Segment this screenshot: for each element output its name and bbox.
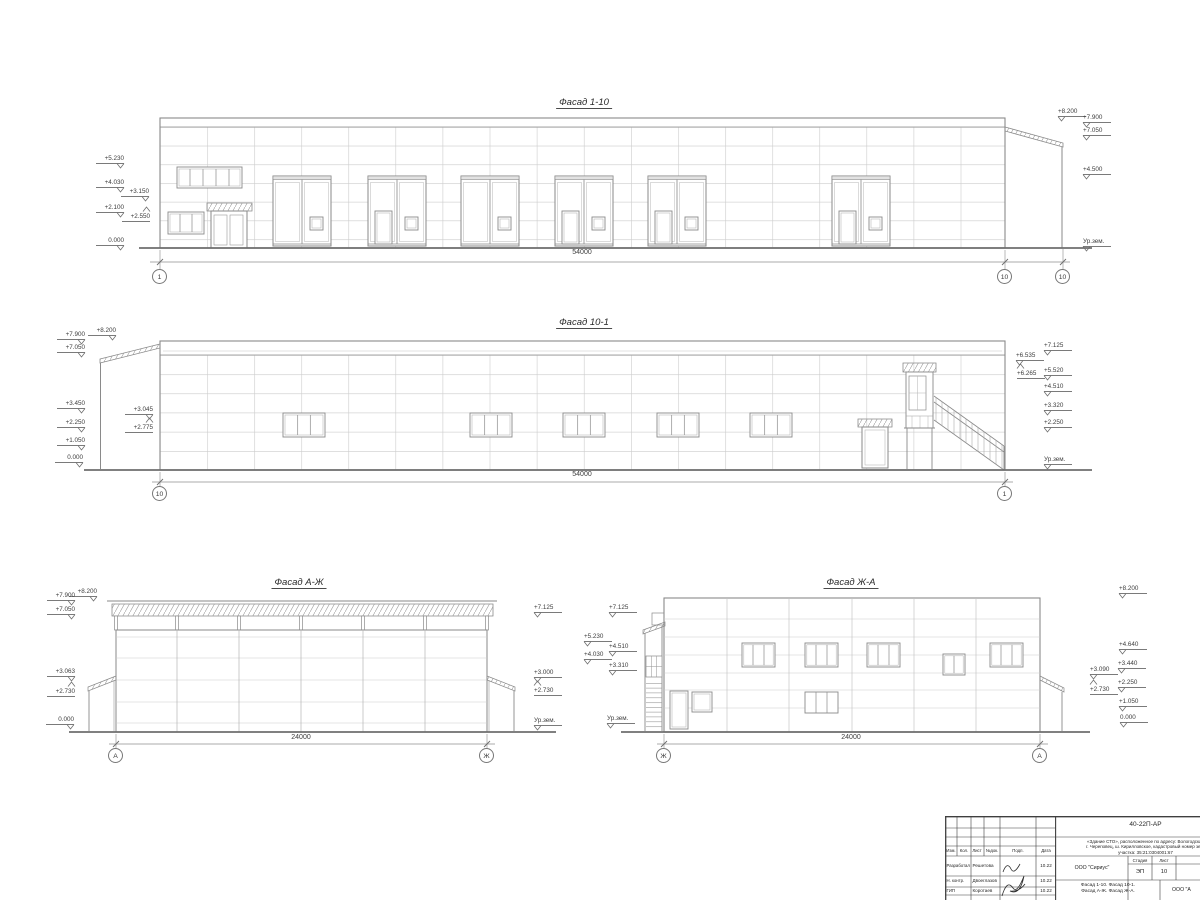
sheet-content: Фасад 1-10. Фасад 10-1. Фасад А-Ж. Фасад… xyxy=(1056,883,1160,895)
stage-value: ЭП xyxy=(1128,869,1152,875)
elevation-mark: Ур.зем. xyxy=(1044,455,1072,465)
elevation-mark: +7.050 xyxy=(57,343,85,353)
elevation-tick-icon xyxy=(1082,246,1091,252)
elevation-value: +7.900 xyxy=(1083,114,1102,121)
elevation-tick-icon xyxy=(66,724,75,730)
elevation-tick-icon xyxy=(1089,679,1098,685)
elevation-value: +3.320 xyxy=(1044,402,1063,409)
elevation-mark: +2.250 xyxy=(1118,678,1146,688)
elevation-mark: +7.050 xyxy=(1083,126,1111,136)
elevation-tick-icon xyxy=(533,680,542,686)
elevation-tick-icon xyxy=(583,641,592,647)
elevation-tick-icon xyxy=(145,417,154,423)
signature-1 xyxy=(1003,864,1020,872)
elevation-tick-icon xyxy=(1043,350,1052,356)
elevation-value: +4.030 xyxy=(105,179,124,186)
elevation-mark: Ур.зем. xyxy=(534,716,562,726)
elevation-value: +4.500 xyxy=(1083,166,1102,173)
elevation-mark: +3.310 xyxy=(609,661,637,671)
elevation-value: +5.520 xyxy=(1044,367,1063,374)
elevation-value: +6.535 xyxy=(1016,352,1035,359)
dimension-label: 54000 xyxy=(572,471,591,479)
person-name: Двоеглазов xyxy=(973,878,1000,884)
elevation-value: +3.063 xyxy=(56,668,75,675)
elevation-value: +3.310 xyxy=(609,662,628,669)
elevation-mark: +3.000 xyxy=(534,668,562,678)
elevation-mark: +3.450 xyxy=(57,399,85,409)
elevation-mark: +3.320 xyxy=(1044,401,1072,411)
elevation-value: +6.265 xyxy=(1017,370,1036,377)
person-date: 10.22 xyxy=(1037,878,1055,884)
elevation-value: +7.050 xyxy=(56,606,75,613)
project-description: «Здание СТО», расположенное по адресу: В… xyxy=(1056,839,1200,856)
elevation-value: +2.250 xyxy=(1118,679,1137,686)
elevation-value: +2.730 xyxy=(56,688,75,695)
elevation-mark: +7.125 xyxy=(1044,341,1072,351)
elevation-mark: +7.900 xyxy=(1083,113,1111,123)
elevation-value: Ур.зем. xyxy=(1083,238,1104,245)
elevation-tick-icon xyxy=(142,206,151,212)
elevation-value: Ур.зем. xyxy=(607,715,628,722)
col-header-izm: Изм. xyxy=(945,848,957,854)
elevation-value: +2.730 xyxy=(534,687,553,694)
elevation-tick-icon xyxy=(77,427,86,433)
elevation-tick-icon xyxy=(1119,722,1128,728)
elevation-tick-icon xyxy=(1117,668,1126,674)
elevation-value: +4.510 xyxy=(609,643,628,650)
person-role: Н. контр. xyxy=(947,878,972,884)
elevation-mark: +6.535 xyxy=(1016,351,1044,361)
elevation-tick-icon xyxy=(1043,391,1052,397)
elevation-tick-icon xyxy=(1043,427,1052,433)
elevation-mark: +2.250 xyxy=(57,418,85,428)
elevation-tick-icon xyxy=(1117,687,1126,693)
axis-bubble: А xyxy=(108,748,123,763)
elevation-mark: +4.500 xyxy=(1083,165,1111,175)
elevation-value: +1.050 xyxy=(66,437,85,444)
elevation-value: +7.050 xyxy=(1083,127,1102,134)
person-name: Коротаев xyxy=(973,888,1000,894)
elevation-value: +7.900 xyxy=(66,331,85,338)
elevation-mark: +1.050 xyxy=(57,436,85,446)
elevation-mark: +2.730 xyxy=(1090,685,1118,695)
dimension-label: 54000 xyxy=(572,249,591,257)
elevation-mark: Ур.зем. xyxy=(607,714,635,724)
facade-title: Фасад А-Ж xyxy=(272,577,327,589)
elevation-mark: +2.250 xyxy=(1044,418,1072,428)
elevation-value: 0.000 xyxy=(67,454,83,461)
drawing-sheet: Фасад 1-105400011010+5.230+4.030+3.150+2… xyxy=(0,0,1200,900)
elevation-value: +5.230 xyxy=(105,155,124,162)
elevation-tick-icon xyxy=(1118,706,1127,712)
stage-label: Стадия xyxy=(1128,858,1152,864)
org2-name: ООО "А xyxy=(1172,887,1191,893)
elevation-value: +3.450 xyxy=(66,400,85,407)
elevation-mark: +4.030 xyxy=(584,650,612,660)
elevation-mark: +4.030 xyxy=(96,178,124,188)
elevation-value: +3.150 xyxy=(130,188,149,195)
elevation-tick-icon xyxy=(1082,135,1091,141)
axis-bubble: 1 xyxy=(997,486,1012,501)
elevation-mark: 0.000 xyxy=(1120,713,1148,723)
elevation-value: +3.000 xyxy=(534,669,553,676)
col-header-podp: Подп. xyxy=(1000,848,1036,854)
elevation-mark: +2.730 xyxy=(534,686,562,696)
axis-bubble: 10 xyxy=(997,269,1012,284)
elevation-mark: +3.440 xyxy=(1118,659,1146,669)
elevation-mark: +8.200 xyxy=(1119,584,1147,594)
elevation-value: +3.090 xyxy=(1090,666,1109,673)
col-header-data: Дата xyxy=(1036,848,1056,854)
elevation-value: +1.050 xyxy=(1119,698,1138,705)
elevation-tick-icon xyxy=(67,614,76,620)
person-role: ГИП xyxy=(947,888,972,894)
elevation-mark: +8.200 xyxy=(1058,107,1086,117)
elevation-tick-icon xyxy=(1043,410,1052,416)
elevation-tick-icon xyxy=(141,196,150,202)
elevation-tick-icon xyxy=(1043,375,1052,381)
sheet-content-line: Фасад А-Ж. Фасад Ж-А. xyxy=(1056,889,1160,895)
elevation-tick-icon xyxy=(77,352,86,358)
axis-bubble: Ж xyxy=(656,748,671,763)
elevation-tick-icon xyxy=(116,245,125,251)
sheet-value: 10 xyxy=(1152,869,1176,875)
elevation-tick-icon xyxy=(116,163,125,169)
elevation-tick-icon xyxy=(77,408,86,414)
elevation-mark: +4.510 xyxy=(609,642,637,652)
elevation-mark: +7.900 xyxy=(57,330,85,340)
axis-bubble: 10 xyxy=(1055,269,1070,284)
elevation-value: +3.045 xyxy=(134,406,153,413)
elevation-value: +2.730 xyxy=(1090,686,1109,693)
elevation-value: +2.100 xyxy=(105,204,124,211)
elevation-mark: +4.640 xyxy=(1119,640,1147,650)
elevation-value: +8.200 xyxy=(1119,585,1138,592)
elevation-value: 0.000 xyxy=(108,237,124,244)
title-block: 40-22П-АР «Здание СТО», расположенное по… xyxy=(945,816,1200,900)
elevation-tick-icon xyxy=(1016,363,1025,369)
elevation-tick-icon xyxy=(1118,593,1127,599)
elevation-tick-icon xyxy=(608,670,617,676)
elevation-mark: +1.050 xyxy=(1119,697,1147,707)
elevation-value: +2.250 xyxy=(1044,419,1063,426)
elevation-value: +7.900 xyxy=(56,592,75,599)
elevation-mark: +7.900 xyxy=(47,591,75,601)
col-header-list: Лист xyxy=(970,848,984,854)
elevation-mark: +4.510 xyxy=(1044,382,1072,392)
elevation-tick-icon xyxy=(67,681,76,687)
elevation-mark: Ур.зем. xyxy=(1083,237,1111,247)
dimension-label: 24000 xyxy=(841,734,860,742)
elevation-mark: +5.520 xyxy=(1044,366,1072,376)
axis-bubble: Ж xyxy=(479,748,494,763)
facade-title: Фасад 1-10 xyxy=(556,97,612,109)
elevation-value: +8.200 xyxy=(78,588,97,595)
elevation-value: +3.440 xyxy=(1118,660,1137,667)
axis-bubble: 1 xyxy=(152,269,167,284)
signature-2 xyxy=(1002,876,1025,896)
axis-bubble: А xyxy=(1032,748,1047,763)
elevation-value: +2.775 xyxy=(134,424,153,431)
elevation-mark: +2.730 xyxy=(47,687,75,697)
elevation-value: +4.640 xyxy=(1119,641,1138,648)
elevation-value: +7.125 xyxy=(1044,342,1063,349)
elevation-tick-icon xyxy=(75,462,84,468)
elevation-tick-icon xyxy=(608,612,617,618)
elevation-mark: +3.090 xyxy=(1090,665,1118,675)
elevation-value: +2.550 xyxy=(131,213,150,220)
col-header-ndok: №док. xyxy=(984,848,1000,854)
elevation-tick-icon xyxy=(1057,116,1066,122)
axis-bubble: 10 xyxy=(152,486,167,501)
elevation-mark: +8.200 xyxy=(88,326,116,336)
elevation-mark: +3.045 xyxy=(125,405,153,415)
elevation-value: +8.200 xyxy=(1058,108,1077,115)
elevation-mark: +2.775 xyxy=(125,423,153,433)
facade-title: Фасад Ж-А xyxy=(824,577,879,589)
project-line: участка: 35:21:0304001:67 xyxy=(1056,850,1200,856)
elevation-mark: +7.125 xyxy=(609,603,637,613)
sheet-label: Лист xyxy=(1152,858,1176,864)
elevation-tick-icon xyxy=(108,335,117,341)
elevation-tick-icon xyxy=(533,725,542,731)
doc-number: 40-22П-АР xyxy=(1056,821,1200,828)
elevation-tick-icon xyxy=(1118,649,1127,655)
elevation-tick-icon xyxy=(583,659,592,665)
elevation-mark: 0.000 xyxy=(96,236,124,246)
elevation-value: +4.510 xyxy=(1044,383,1063,390)
elevation-mark: +3.150 xyxy=(121,187,149,197)
elevation-tick-icon xyxy=(89,596,98,602)
elevation-mark: +2.100 xyxy=(96,203,124,213)
elevation-value: +2.250 xyxy=(66,419,85,426)
facade-title: Фасад 10-1 xyxy=(556,317,612,329)
elevation-tick-icon xyxy=(1043,464,1052,470)
elevation-mark: 0.000 xyxy=(55,453,83,463)
elevation-value: +7.125 xyxy=(534,604,553,611)
elevation-value: Ур.зем. xyxy=(1044,456,1065,463)
dimension-label: 24000 xyxy=(291,734,310,742)
elevation-value: +7.050 xyxy=(66,344,85,351)
person-date: 10.22 xyxy=(1037,888,1055,894)
elevation-value: +8.200 xyxy=(97,327,116,334)
elevation-mark: +5.230 xyxy=(584,632,612,642)
elevation-mark: +7.050 xyxy=(47,605,75,615)
elevation-value: +5.230 xyxy=(584,633,603,640)
elevation-tick-icon xyxy=(77,445,86,451)
elevation-mark: +5.230 xyxy=(96,154,124,164)
annotations-layer: Фасад 1-105400011010+5.230+4.030+3.150+2… xyxy=(0,0,1200,900)
org-name: ООО "Сириус" xyxy=(1056,865,1128,871)
person-role: Разработал xyxy=(947,863,972,869)
elevation-mark: +7.125 xyxy=(534,603,562,613)
elevation-mark: +6.265 xyxy=(1017,369,1045,379)
person-name: Решетова xyxy=(973,863,1000,869)
elevation-mark: +2.550 xyxy=(122,212,150,222)
elevation-value: Ур.зем. xyxy=(534,717,555,724)
elevation-value: +4.030 xyxy=(584,651,603,658)
elevation-mark: 0.000 xyxy=(46,715,74,725)
elevation-value: +7.125 xyxy=(609,604,628,611)
elevation-value: 0.000 xyxy=(1120,714,1136,721)
elevation-value: 0.000 xyxy=(58,716,74,723)
elevation-tick-icon xyxy=(1082,174,1091,180)
person-date: 10.22 xyxy=(1037,863,1055,869)
elevation-tick-icon xyxy=(606,723,615,729)
elevation-mark: +3.063 xyxy=(47,667,75,677)
col-header-kol: Кол. xyxy=(957,848,971,854)
elevation-tick-icon xyxy=(533,612,542,618)
